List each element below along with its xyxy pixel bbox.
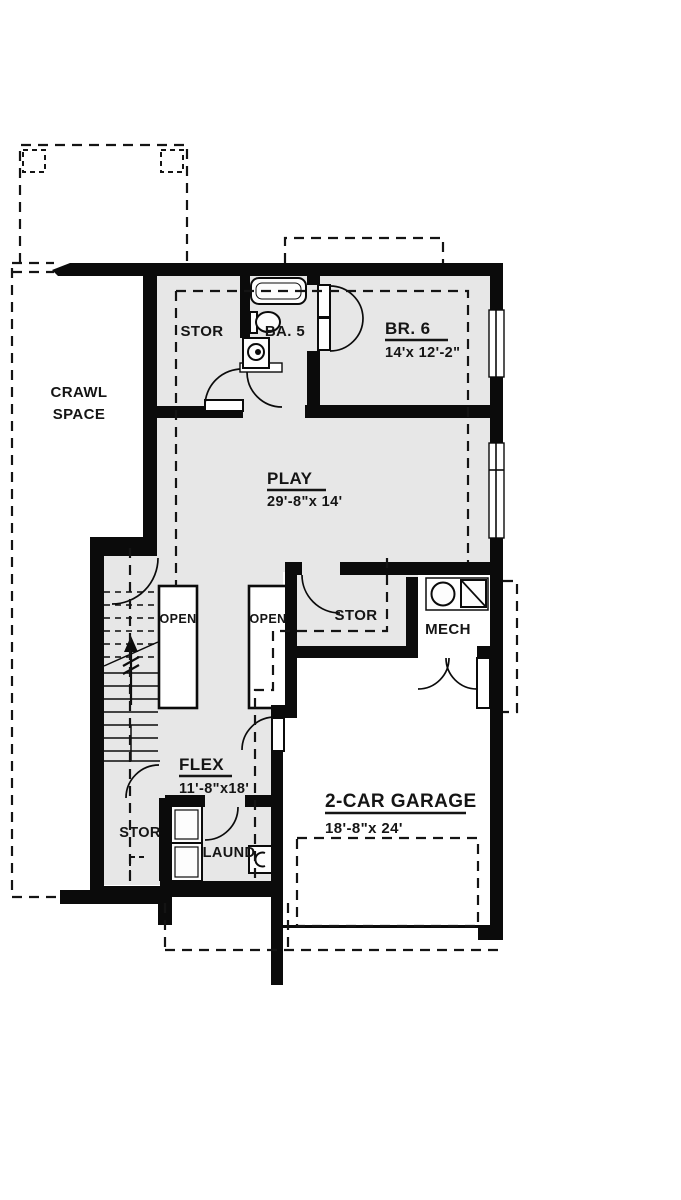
wall-right-3 [490,538,503,940]
laund-label: LAUND [203,845,256,861]
wall-br6-stub-top [307,276,320,285]
floor-plan-canvas: CRAWL SPACE STOR BA. 5 BR. 6 14'x 12'-2"… [0,0,681,1200]
wall-br6-bottom [305,405,503,418]
crawl-space-label-1: CRAWL [51,384,108,401]
wall-garage-corner [478,925,503,940]
washer [171,806,202,843]
mech-label: MECH [425,621,471,638]
garage-door-panel-outline [297,838,478,926]
br6-dims: 14'x 12'-2" [385,345,460,361]
ba5-sink-drain [255,349,261,355]
above-outline-br6 [285,238,443,263]
wall-hall-jog [271,705,297,718]
wall-stor-mech-divider [406,577,418,646]
wall-right-1 [490,263,503,310]
garage-entry-door-leaf [272,718,284,751]
garage-side-pad-outline [503,581,517,712]
wall-garage-top-a [297,646,418,658]
flex-dims: 11'-8"x18' [179,781,249,797]
ba5-label: BA. 5 [265,323,305,340]
open-area-left [159,586,197,708]
mech-door-leaf [477,658,490,708]
stor-bottom-label: STOR [119,825,161,841]
wall-top-left-tip [52,263,70,276]
crawl-space-label-2: SPACE [53,406,106,423]
open-right-label: OPEN [249,612,286,626]
wall-bottom-laund [160,881,283,897]
wall-top [70,263,503,276]
stor-mid-label: STOR [335,607,378,624]
wall-play-bottom-a [285,562,302,575]
br6-door-leaf-2 [318,318,330,350]
mech-door-swing-1 [418,658,449,689]
garage-dims: 18'-8"x 24' [325,820,403,837]
wall-play-bottom-b [340,562,503,575]
wall-ba5-divider [240,276,250,338]
dryer [171,843,202,881]
hall-door-leaf [205,400,243,411]
br6-label: BR. 6 [385,319,430,338]
play-label: PLAY [267,469,313,488]
garage-label: 2-CAR GARAGE [325,791,477,812]
mech-door-swing-2 [446,658,477,689]
play-dims: 29'-8"x 14' [267,494,342,510]
deck-post-left [23,150,45,172]
stor-top-label: STOR [181,323,224,340]
wall-left-jog [97,537,157,556]
open-left-label: OPEN [159,612,196,626]
wall-left-upper [143,263,157,556]
wall-left-lower [90,537,104,897]
br6-door-leaf-1 [318,285,330,317]
wall-hall-garage [285,575,297,712]
water-heater [432,583,455,606]
floor-plan-page: CRAWL SPACE STOR BA. 5 BR. 6 14'x 12'-2"… [0,0,681,1200]
deck-post-right [161,150,183,172]
flex-label: FLEX [179,755,224,774]
wall-garage-top-b [477,646,503,658]
